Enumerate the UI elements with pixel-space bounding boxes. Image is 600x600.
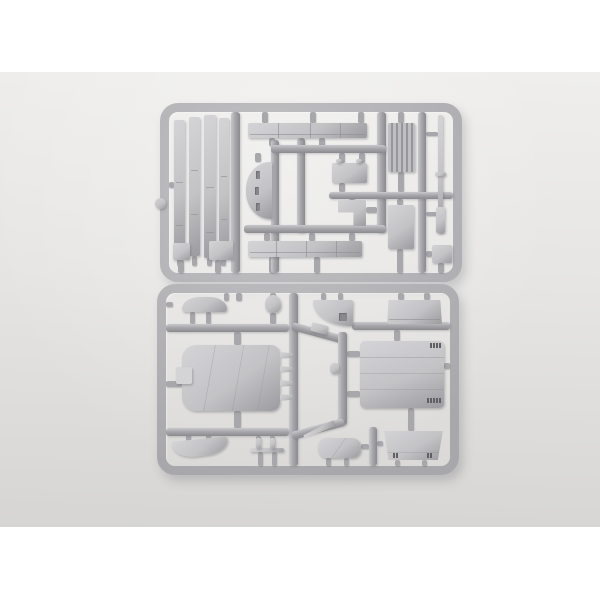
- photo-canvas: [0, 0, 600, 600]
- runner-horizontal: [166, 324, 289, 332]
- sprue-gate: [349, 233, 355, 241]
- part-track-strip: [219, 118, 229, 255]
- part-front-fender: [182, 297, 227, 312]
- sprue-gate: [234, 332, 241, 345]
- part-hatch-box: [332, 163, 367, 183]
- sprue-gate: [438, 263, 444, 273]
- sprue-frame-bottom: [157, 284, 459, 475]
- part-engine-deck-panel: [360, 341, 444, 408]
- sprue-gate: [310, 112, 316, 123]
- photo-background: [0, 72, 600, 527]
- part-segmented-beam: [248, 123, 367, 138]
- sprue-gate: [224, 293, 229, 301]
- part-mushroom-knob: [265, 295, 281, 313]
- sprue-gate: [398, 172, 404, 192]
- sprue-gate: [397, 249, 403, 273]
- part-curved-slotted: [246, 162, 272, 219]
- runner-vertical: [289, 293, 298, 466]
- sprue-gate: [366, 207, 377, 213]
- sprue-gate: [270, 313, 276, 324]
- sprue-gate: [398, 112, 404, 123]
- part-gun-barrel-base: [436, 207, 445, 233]
- sprue-gate: [264, 233, 270, 241]
- part-square-fitting: [432, 245, 452, 263]
- sprue-gate: [192, 256, 197, 266]
- part-pin-knob: [330, 363, 339, 374]
- runner-horizontal: [329, 192, 453, 199]
- sprue-gate: [358, 112, 364, 123]
- part-plain-panel: [388, 205, 414, 249]
- sprue-gate: [339, 183, 345, 192]
- sprue-gate: [422, 460, 427, 466]
- runner-vertical: [377, 112, 386, 233]
- part-lower-trapezoid: [383, 431, 444, 460]
- sprue-gate: [344, 458, 349, 466]
- sprue-gate: [262, 112, 268, 123]
- part-upper-trapezoid: [387, 300, 442, 324]
- sprue-gate: [309, 233, 315, 241]
- sprue-gate: [426, 132, 438, 136]
- sprue-gate: [347, 391, 360, 397]
- sprue-gate: [395, 460, 400, 466]
- sprue-gate: [347, 351, 360, 357]
- part-hull-tub: [182, 345, 280, 411]
- part-seat-pad: [318, 438, 361, 458]
- sprue-gate: [166, 302, 173, 307]
- part-post-rail: [250, 438, 284, 452]
- sprue-gate: [215, 260, 221, 273]
- part-engine-grille: [388, 123, 415, 172]
- sprue-gate: [255, 153, 261, 162]
- sprue-gate: [338, 293, 343, 300]
- part-small-box: [209, 241, 233, 260]
- part-small-box: [173, 243, 190, 260]
- part-quarter-wedge: [313, 300, 353, 326]
- sprue-frame-top: [160, 103, 462, 282]
- sprue-gate: [236, 293, 242, 301]
- part-track-strip: [189, 117, 200, 256]
- sprue-gate: [258, 452, 263, 466]
- sprue-gate: [272, 452, 277, 466]
- sprue-gate: [408, 408, 414, 431]
- sprue-gate: [178, 260, 184, 273]
- runner-horizontal: [166, 428, 289, 436]
- part-rear-fender: [171, 436, 228, 459]
- sprue-gate: [398, 293, 404, 300]
- runner-horizontal: [244, 225, 386, 233]
- sprue-gate: [321, 293, 326, 300]
- runner-horizontal: [271, 145, 386, 153]
- part-track-strip: [174, 120, 185, 254]
- sprue-gate: [424, 293, 430, 300]
- part-gun-barrel-collar: [435, 172, 446, 176]
- sprue-gate: [444, 363, 450, 369]
- part-l-bracket: [338, 200, 366, 226]
- runner-vertical: [338, 332, 347, 425]
- part-round-knob: [155, 198, 166, 209]
- part-track-strip: [204, 115, 216, 258]
- runner-vertical: [369, 427, 377, 466]
- sprue-gate: [394, 330, 400, 341]
- sprue-gate: [190, 312, 195, 324]
- part-segmented-beam: [248, 241, 362, 257]
- sprue-gate: [326, 458, 331, 466]
- sprue-gate: [234, 411, 241, 428]
- sprue-gate: [314, 257, 320, 273]
- sprue-gate: [377, 441, 383, 446]
- sprue-gate: [361, 444, 369, 449]
- sprue-gate: [206, 312, 211, 324]
